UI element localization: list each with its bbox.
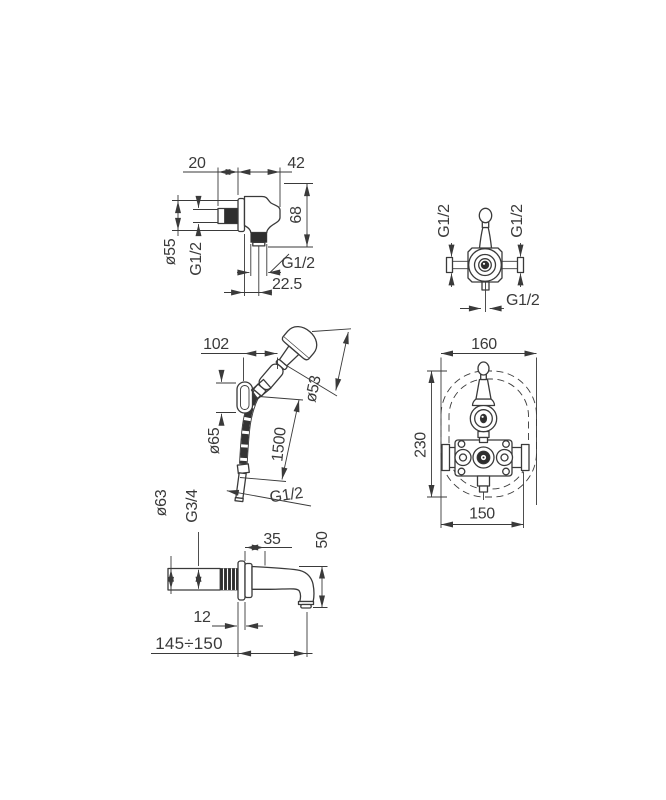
front-bottom-stub [478, 476, 490, 486]
thread-g34-label: G3/4 [184, 489, 201, 523]
thermostat-dial-center [480, 414, 486, 423]
wall-union-view: 20 42 68 ø55 G1/2 G1/2 [162, 155, 315, 296]
dim-160-label: 160 [471, 336, 497, 353]
dim-22-5-label: 22.5 [272, 276, 302, 293]
outlet-tip [253, 242, 265, 246]
thread-right-label: G1/2 [509, 204, 526, 238]
hose-end-tube [236, 473, 246, 499]
thread-hose-label: G1/2 [269, 485, 305, 507]
center-rosette-dot [483, 457, 485, 459]
bar-knob-right [497, 450, 513, 466]
spout-outlet-tip [301, 605, 311, 609]
hand-shower-view: 102 ø53 ø65 1500 G1/2 [201, 321, 351, 507]
dial-stem [478, 432, 489, 438]
lever-shaft [480, 228, 492, 249]
dim-12-label: 12 [193, 609, 211, 626]
left-union-nut [447, 258, 453, 273]
valve-front-dims: 160 230 150 [413, 336, 537, 528]
thread-left-label: G1/2 [436, 204, 453, 238]
bolt-top-right [503, 441, 510, 448]
hose-end-cap [235, 498, 243, 502]
dial-stem-lower [480, 438, 488, 443]
valve-top-view: G1/2 G1/2 G1/2 [436, 204, 540, 312]
spout-view: ø63 G3/4 35 50 12 145÷1 [151, 489, 331, 657]
bar-cap-left [442, 445, 450, 471]
dia-53-label: ø53 [303, 374, 325, 404]
dim-20-label: 20 [188, 155, 206, 172]
spout-flange [238, 561, 245, 600]
front-bottom-foot [480, 486, 488, 492]
bar-cap-right [522, 445, 530, 471]
dim-50-label: 50 [314, 531, 331, 549]
bolt-bottom-right [503, 468, 510, 475]
dim-42-label: 42 [287, 155, 305, 172]
dia-55-label: ø55 [162, 238, 179, 265]
front-lever-bell [473, 399, 495, 406]
technical-drawing-page: 20 42 68 ø55 G1/2 G1/2 [0, 0, 666, 800]
thread-bottom-label: G1/2 [506, 292, 540, 309]
union-body [245, 197, 281, 233]
wall-flange [238, 199, 245, 232]
dim-150-label: 150 [469, 506, 495, 523]
thread-outlet-label: G1/2 [281, 255, 315, 272]
mixer-technical-drawing: 20 42 68 ø55 G1/2 G1/2 [0, 0, 666, 800]
dia-63-label: ø63 [153, 489, 170, 516]
spout-body [252, 567, 314, 602]
bar-knob-left [455, 450, 471, 466]
dia-65-label: ø65 [206, 427, 223, 454]
outlet-thread [251, 233, 267, 243]
dim-102-label: 102 [203, 336, 229, 353]
valve-center-highlight [483, 263, 485, 265]
dial-highlight [482, 416, 484, 418]
bolt-top-left [458, 441, 465, 448]
dim-35-label: 35 [263, 531, 281, 548]
bolt-bottom-left [458, 468, 465, 475]
hand-shower-dims: 102 ø53 ø65 1500 G1/2 [201, 329, 351, 506]
front-lever-shaft [476, 380, 491, 400]
right-union-nut [518, 258, 524, 273]
valve-center [481, 261, 489, 269]
dim-230-label: 230 [413, 432, 430, 458]
front-lever-knob [478, 362, 489, 375]
dim-reach-label: 145÷150 [155, 634, 222, 653]
lever-knob [479, 208, 491, 222]
dim-68-label: 68 [288, 206, 305, 224]
hose-length-label: 1500 [269, 426, 290, 462]
valve-front-view: 160 230 150 [413, 336, 537, 528]
inlet-thread [225, 209, 239, 224]
bracket-rosette [237, 382, 253, 413]
spout-tail-pipe [168, 569, 220, 591]
spout-collar [245, 564, 252, 598]
thread-inlet-label: G1/2 [188, 242, 205, 276]
